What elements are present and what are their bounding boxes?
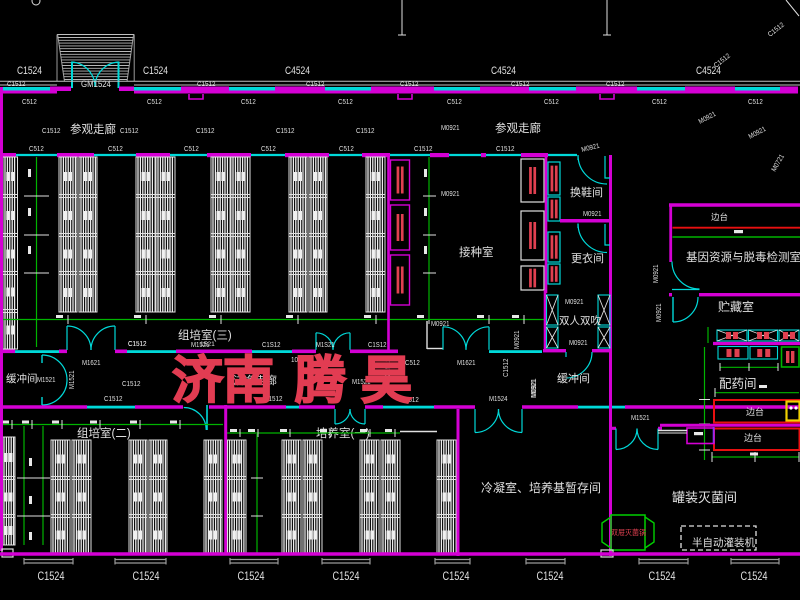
- svg-text:M0921: M0921: [569, 340, 588, 347]
- svg-text:C1512: C1512: [128, 341, 147, 348]
- svg-text:C1512: C1512: [496, 146, 515, 153]
- svg-text:贮藏室: 贮藏室: [718, 299, 754, 314]
- svg-text:M1521: M1521: [191, 342, 210, 349]
- svg-text:C512: C512: [147, 99, 162, 106]
- svg-text:C512: C512: [108, 146, 123, 153]
- svg-text:M1524: M1524: [489, 396, 508, 403]
- svg-text:C512: C512: [748, 99, 763, 106]
- svg-text:罐装灭菌间: 罐装灭菌间: [672, 490, 737, 505]
- svg-text:C1512: C1512: [276, 128, 295, 135]
- svg-text:C1524: C1524: [133, 569, 160, 583]
- svg-text:C1512: C1512: [196, 128, 215, 135]
- svg-text:C1524: C1524: [38, 569, 65, 583]
- svg-text:C512: C512: [447, 99, 462, 106]
- svg-text:C512: C512: [184, 146, 199, 153]
- svg-text:参观走廊: 参观走廊: [70, 122, 116, 136]
- svg-text:C1512: C1512: [511, 81, 530, 88]
- svg-text:C1S12: C1S12: [262, 342, 281, 349]
- svg-text:C1512: C1512: [42, 128, 61, 135]
- svg-text:C512: C512: [29, 146, 44, 153]
- svg-text:C1512: C1512: [503, 358, 510, 377]
- svg-text:接种室: 接种室: [459, 245, 494, 259]
- svg-text:C512: C512: [241, 99, 256, 106]
- svg-text:C1524: C1524: [741, 569, 768, 583]
- svg-text:M1521: M1521: [69, 370, 76, 389]
- svg-text:半自动灌装机: 半自动灌装机: [692, 536, 755, 549]
- svg-text:C1512: C1512: [306, 81, 325, 88]
- svg-text:C1S12: C1S12: [368, 342, 387, 349]
- svg-text:M1521: M1521: [631, 415, 650, 422]
- svg-text:缓冲间: 缓冲间: [6, 372, 38, 385]
- svg-text:C1512: C1512: [606, 81, 625, 88]
- svg-text:C1524: C1524: [143, 65, 168, 77]
- svg-text:C1512: C1512: [122, 381, 141, 388]
- svg-text:M0921: M0921: [656, 303, 663, 322]
- svg-text:C1512: C1512: [400, 81, 419, 88]
- svg-text:更衣间: 更衣间: [571, 251, 604, 265]
- svg-text:边台: 边台: [746, 406, 764, 417]
- svg-text:C1512: C1512: [7, 81, 26, 88]
- svg-text:M0921: M0921: [441, 191, 460, 198]
- svg-text:C1512: C1512: [356, 128, 375, 135]
- svg-text:M0921: M0921: [531, 379, 538, 398]
- svg-text:配药间: 配药间: [719, 377, 757, 391]
- svg-text:边台: 边台: [711, 212, 728, 222]
- svg-text:C4524: C4524: [285, 65, 310, 77]
- svg-text:C1524: C1524: [443, 569, 470, 583]
- svg-text:M0921: M0921: [514, 330, 521, 349]
- svg-text:C1512: C1512: [104, 396, 123, 403]
- svg-text:M1621: M1621: [457, 360, 476, 367]
- svg-text:基因资源与脱毒检测室: 基因资源与脱毒检测室: [686, 250, 800, 264]
- svg-text:C512: C512: [261, 146, 276, 153]
- svg-text:双人双吹: 双人双吹: [559, 314, 601, 327]
- svg-text:M1521: M1521: [37, 377, 56, 384]
- svg-text:M1S21: M1S21: [316, 342, 335, 349]
- svg-text:C1524: C1524: [537, 569, 564, 583]
- svg-text:C512: C512: [544, 99, 559, 106]
- svg-text:C1512: C1512: [120, 128, 139, 135]
- svg-text:换鞋间: 换鞋间: [570, 185, 603, 199]
- svg-text:冷凝室、培养基暂存间: 冷凝室、培养基暂存间: [481, 480, 601, 495]
- svg-text:C1512: C1512: [197, 81, 216, 88]
- svg-text:边台: 边台: [744, 432, 762, 443]
- svg-text:M0921: M0921: [583, 211, 602, 218]
- svg-text:组培室(三): 组培室(三): [178, 328, 232, 342]
- svg-text:C512: C512: [338, 99, 353, 106]
- svg-text:C1524: C1524: [649, 569, 676, 583]
- svg-text:C512: C512: [22, 99, 37, 106]
- svg-text:缓冲间: 缓冲间: [557, 371, 590, 385]
- svg-text:双屉灭菌锅: 双屉灭菌锅: [611, 527, 646, 537]
- svg-text:GM1524: GM1524: [81, 79, 111, 90]
- svg-text:C4524: C4524: [696, 65, 721, 77]
- svg-text:C512: C512: [339, 146, 354, 153]
- svg-text:C4524: C4524: [491, 65, 516, 77]
- svg-text:M0921: M0921: [441, 125, 460, 132]
- svg-text:C1524: C1524: [333, 569, 360, 583]
- svg-text:C1512: C1512: [414, 146, 433, 153]
- svg-text:C1524: C1524: [17, 65, 42, 77]
- svg-text:M1621: M1621: [82, 360, 101, 367]
- svg-text:组培室(二): 组培室(二): [77, 426, 131, 440]
- svg-text:C512: C512: [652, 99, 667, 106]
- svg-text:C1524: C1524: [238, 569, 265, 583]
- svg-text:M0921: M0921: [653, 264, 660, 283]
- svg-text:参观走廊: 参观走廊: [495, 121, 541, 135]
- svg-text:M0921: M0921: [565, 299, 584, 306]
